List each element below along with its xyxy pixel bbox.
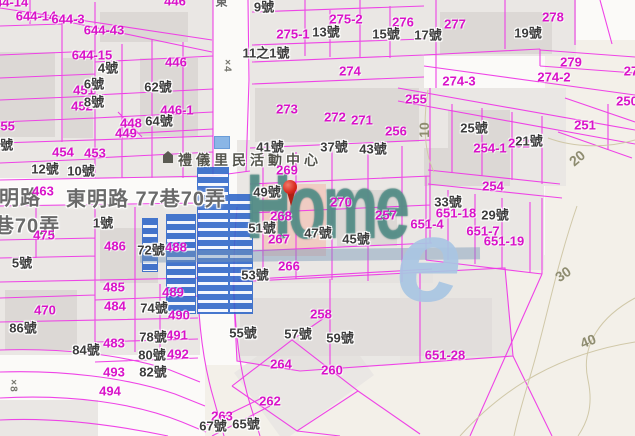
parcel-number-label: 254-1 (473, 141, 506, 156)
parcel-number-label: 260 (321, 363, 343, 378)
house-number-label: 59號 (326, 328, 353, 347)
parcel-number-label: 274-3 (442, 74, 475, 89)
house-number-label: 84號 (72, 340, 99, 359)
parcel-number-label: 275-1 (276, 27, 309, 42)
parcel-number-label: 491 (166, 328, 188, 343)
parcel-number-label: 27 (624, 64, 635, 79)
parcel-number-label: 455 (0, 119, 15, 134)
house-number-label: 43號 (359, 139, 386, 158)
street-name-label: 東明路 77巷70弄 (66, 183, 226, 212)
parcel-number-label: 494 (99, 384, 121, 399)
house-number-label: 13號 (312, 22, 339, 41)
road-width-mark: ×4 (222, 59, 233, 72)
road-width-mark: ×8 (8, 379, 19, 392)
parcel-number-label: 651-19 (484, 234, 524, 249)
parcel-number-label: 271 (351, 113, 373, 128)
parcel-number-label: 270 (330, 195, 352, 210)
cadastral-map[interactable]: Home e 禮儀里民活動中心 東明路東明路 77巷70弄巷70弄644-146… (0, 0, 635, 436)
map-pin-icon[interactable] (287, 192, 295, 206)
parcel-number-label: 269 (276, 163, 298, 178)
parcel-number-label: 278 (542, 10, 564, 25)
parcel-number-label: 470 (34, 303, 56, 318)
parcel-number-label: 644-43 (84, 23, 124, 38)
parcel-number-label: 644-14 (16, 9, 56, 24)
house-number-label: 64號 (145, 111, 172, 130)
parcel-number-label: 483 (103, 336, 125, 351)
house-number-label: 25號 (460, 118, 487, 137)
parcel-number-label: 490 (168, 308, 190, 323)
house-number-label: 53號 (241, 265, 268, 284)
house-number-label: 19號 (514, 23, 541, 42)
house-number-label: 65號 (232, 414, 259, 433)
map-pin-icon[interactable] (283, 180, 297, 194)
house-number-label: 62號 (144, 77, 171, 96)
parcel-number-label: 266 (278, 259, 300, 274)
parcel-number-label: 258 (310, 307, 332, 322)
parcel-number-label: 277 (444, 17, 466, 32)
parcel-number-label: 272 (324, 110, 346, 125)
house-number-label: 74號 (140, 298, 167, 317)
house-number-label: 10號 (67, 161, 94, 180)
house-number-label: 82號 (139, 362, 166, 381)
parcel-number-label: 274 (339, 64, 361, 79)
parcel-number-label: 255 (405, 92, 427, 107)
parcel-number-label: 254 (482, 179, 504, 194)
street-name-label: 東 (215, 0, 228, 10)
parcel-number-label: 486 (104, 239, 126, 254)
parcel-number-label: 446 (164, 0, 186, 9)
house-number-label: 21號 (515, 131, 542, 150)
parcel-number-label: 274-2 (537, 70, 570, 85)
house-number-label: 51號 (248, 218, 275, 237)
house-number-label: 11之1號 (243, 43, 290, 62)
house-number-label: 86號 (9, 318, 36, 337)
parcel-number-label: 256 (385, 124, 407, 139)
house-number-label: 4號 (0, 135, 13, 154)
house-number-label: 78號 (139, 327, 166, 346)
parcel-number-label: 251 (574, 118, 596, 133)
parcel-number-label: 449 (115, 126, 137, 141)
parcel-number-label: 488 (165, 240, 187, 255)
parcel-number-label: 257 (375, 208, 397, 223)
parcel-number-label: 493 (103, 365, 125, 380)
house-number-label: 1號 (93, 213, 113, 232)
house-number-label: 29號 (481, 205, 508, 224)
parcel-number-label: 453 (84, 146, 106, 161)
house-number-label: 45號 (342, 229, 369, 248)
parcel-number-label: 273 (276, 102, 298, 117)
parcel-number-label: 279 (560, 55, 582, 70)
parcel-number-label: 264 (270, 357, 292, 372)
house-number-label: 33號 (434, 192, 461, 211)
house-number-label: 37號 (320, 137, 347, 156)
house-number-label: 15號 (372, 24, 399, 43)
parcel-number-label: 475 (33, 228, 55, 243)
house-number-label: 9號 (254, 0, 274, 16)
parcel-number-label: 262 (259, 394, 281, 409)
parcel-number-label: 485 (103, 280, 125, 295)
parcel-number-label: 492 (167, 347, 189, 362)
contour-elevation-label: 10 (416, 122, 432, 138)
poi-label-activity-center: 禮儀里民活動中心 (178, 150, 322, 170)
house-number-label: 55號 (229, 323, 256, 342)
parcel-number-label: 651-28 (425, 348, 465, 363)
parcel-number-label: 463 (32, 184, 54, 199)
house-number-label: 41號 (256, 137, 283, 156)
house-number-label: 17號 (414, 25, 441, 44)
parcel-number-label: 446 (165, 55, 187, 70)
house-number-label: 72號 (137, 240, 164, 259)
house-number-label: 6號 (84, 74, 104, 93)
house-number-label: 47號 (304, 223, 331, 242)
parcel-number-label: 644-3 (51, 12, 84, 27)
parcel-number-label: 250 (616, 94, 635, 109)
parcel-number-label: 484 (104, 299, 126, 314)
house-number-label: 5號 (12, 253, 32, 272)
parcel-number-label: 454 (52, 145, 74, 160)
house-number-label: 67號 (199, 416, 226, 435)
house-number-label: 12號 (31, 159, 58, 178)
house-number-label: 8號 (84, 92, 104, 111)
house-number-label: 57號 (284, 324, 311, 343)
house-number-label: 49號 (253, 182, 280, 201)
